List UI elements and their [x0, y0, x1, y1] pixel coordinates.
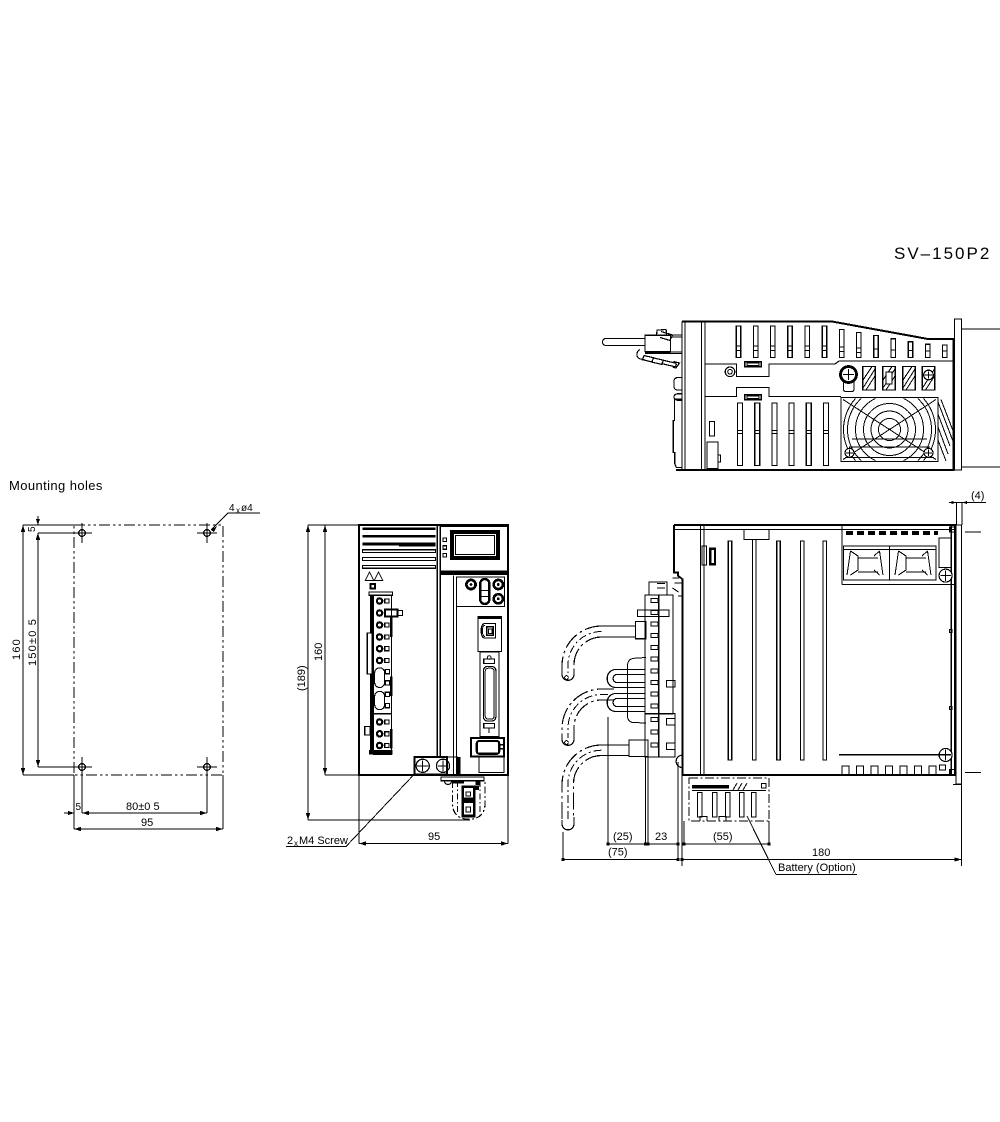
svg-text:180: 180 — [812, 847, 830, 859]
svg-text:(25): (25) — [613, 831, 633, 843]
svg-text:(75): (75) — [608, 847, 628, 859]
svg-text:95: 95 — [141, 817, 153, 829]
svg-text:Mounting holes: Mounting holes — [9, 478, 103, 493]
svg-text:160: 160 — [313, 643, 325, 661]
svg-text:4: 4 — [229, 503, 235, 514]
svg-text:150±0 5: 150±0 5 — [27, 618, 39, 666]
svg-text:80±0 5: 80±0 5 — [126, 801, 160, 813]
svg-text:160: 160 — [11, 638, 23, 660]
svg-text:2: 2 — [287, 835, 293, 847]
svg-text:(4): (4) — [971, 490, 984, 502]
svg-text:(55): (55) — [713, 831, 733, 843]
svg-text:23: 23 — [655, 831, 667, 843]
svg-text:x: x — [236, 506, 240, 515]
svg-text:ø4: ø4 — [241, 503, 253, 514]
svg-text:5: 5 — [76, 802, 82, 813]
svg-text:(189): (189) — [296, 665, 308, 691]
svg-text:SV–150P2: SV–150P2 — [894, 244, 991, 263]
svg-text:95: 95 — [428, 831, 440, 843]
svg-text:5: 5 — [27, 526, 38, 532]
svg-text:Battery (Option): Battery (Option) — [778, 862, 856, 874]
svg-text:M4 Screw: M4 Screw — [299, 835, 348, 847]
